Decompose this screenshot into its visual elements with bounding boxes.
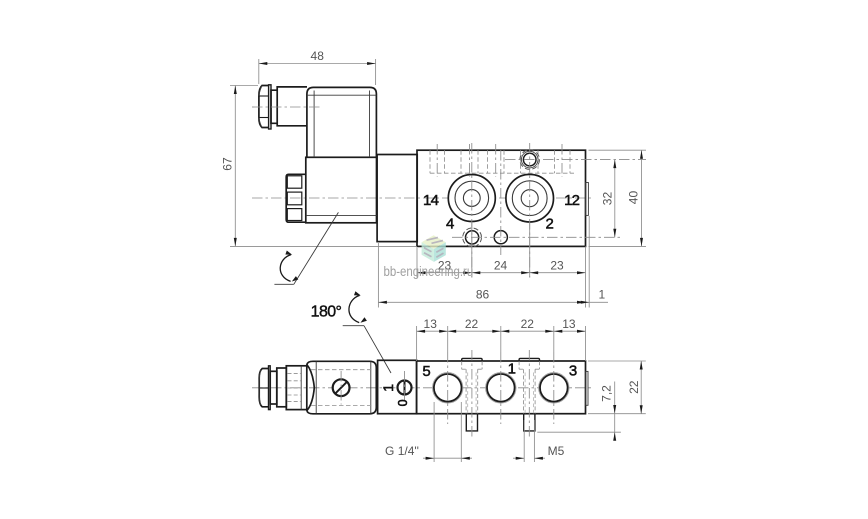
svg-text:bb-engineering.ru: bb-engineering.ru [384,264,474,279]
svg-text:4: 4 [446,216,454,233]
svg-text:1: 1 [380,384,396,392]
svg-text:13: 13 [424,317,438,331]
svg-text:0: 0 [396,399,410,406]
svg-text:G 1/4'': G 1/4'' [385,444,419,458]
svg-text:86: 86 [476,288,490,302]
svg-text:40: 40 [626,191,640,205]
svg-text:5: 5 [422,363,430,380]
svg-text:13: 13 [562,317,576,331]
svg-text:14: 14 [423,192,439,209]
svg-text:12: 12 [564,192,580,209]
svg-text:48: 48 [311,49,325,63]
svg-text:2: 2 [546,216,554,233]
svg-text:67: 67 [221,157,235,171]
svg-text:3: 3 [569,363,577,380]
svg-text:22: 22 [465,317,479,331]
svg-text:7,2: 7,2 [600,385,614,402]
svg-text:180°: 180° [311,304,342,321]
svg-text:24: 24 [494,258,508,272]
svg-text:32: 32 [600,192,614,206]
svg-text:23: 23 [550,258,564,272]
svg-text:22: 22 [521,317,535,331]
svg-text:1: 1 [599,287,606,301]
svg-text:22: 22 [627,380,641,394]
svg-text:M5: M5 [548,444,565,458]
svg-text:1: 1 [508,361,516,378]
